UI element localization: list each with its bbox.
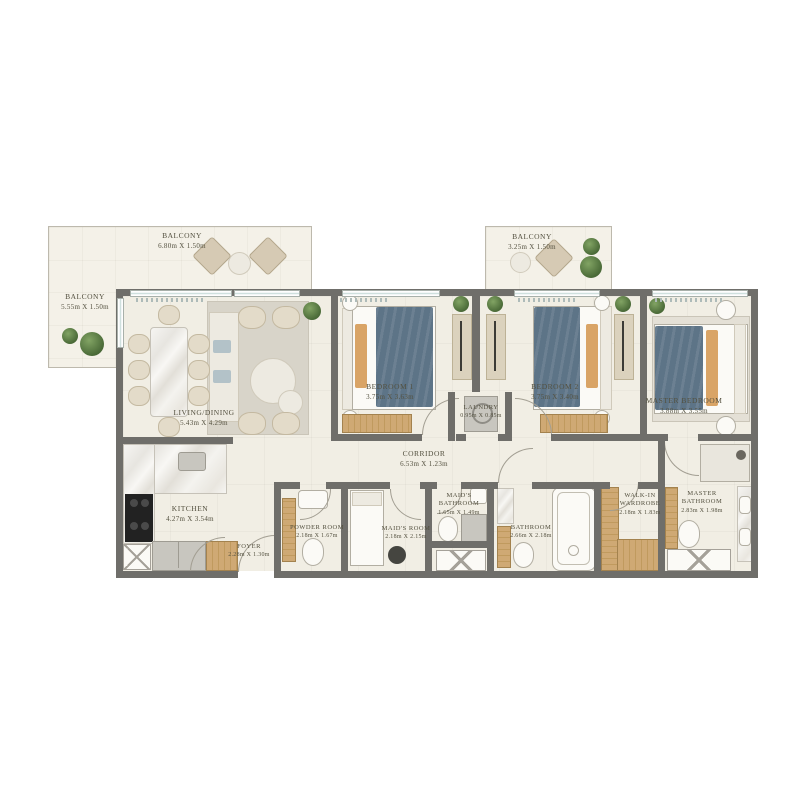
dining-chair bbox=[128, 334, 150, 354]
label-bedroom-2: BEDROOM 2 3.75m X 3.40m bbox=[505, 382, 605, 401]
label-corridor: CORRIDOR 6.53m X 1.23m bbox=[374, 449, 474, 468]
wardrobe-column bbox=[452, 314, 472, 380]
label-maids-bathroom: MAID'S BATHROOM 1.65m X 1.49m bbox=[428, 492, 490, 517]
toilet bbox=[513, 542, 534, 568]
room-dims: 6.80m X 1.50m bbox=[127, 242, 237, 250]
sofa-cushion bbox=[213, 370, 231, 383]
service-shaft bbox=[667, 549, 731, 571]
nightstand bbox=[716, 416, 736, 436]
nightstand bbox=[594, 295, 610, 311]
label-balcony-left: BALCONY 5.55m X 1.50m bbox=[45, 292, 125, 311]
wall bbox=[532, 482, 594, 489]
sliding-door bbox=[514, 290, 600, 297]
plant bbox=[80, 332, 104, 356]
dining-chair bbox=[188, 360, 210, 380]
room-name: BALCONY bbox=[45, 292, 125, 302]
room-name: BALCONY bbox=[127, 231, 237, 241]
wall bbox=[331, 296, 338, 441]
wardrobe-shelving bbox=[617, 539, 664, 571]
balcony-table bbox=[228, 252, 251, 275]
wall bbox=[498, 434, 512, 441]
shower-head bbox=[736, 450, 746, 460]
wardrobe-handle bbox=[494, 321, 496, 371]
stove-burner bbox=[141, 522, 149, 530]
wall bbox=[551, 434, 640, 441]
service-shaft bbox=[436, 550, 486, 571]
window bbox=[130, 290, 232, 297]
room-dims: 0.95m X 0.85m bbox=[448, 413, 514, 420]
bathtub-drain bbox=[568, 545, 579, 556]
floor-plan: BALCONY 6.80m X 1.50m BALCONY 5.55m X 1.… bbox=[0, 0, 800, 800]
room-dims: 5.43m X 4.29m bbox=[144, 419, 264, 427]
wall bbox=[432, 482, 437, 489]
room-name: CORRIDOR bbox=[374, 449, 474, 459]
room-name: MASTER BATHROOM bbox=[670, 490, 734, 507]
room-dims: 6.53m X 1.23m bbox=[374, 460, 474, 468]
plant bbox=[583, 238, 600, 255]
wardrobe-handle bbox=[460, 321, 462, 371]
armchair bbox=[272, 412, 300, 435]
label-master-bedroom: MASTER BEDROOM 3.88m X 3.55m bbox=[624, 396, 744, 415]
room-dims: 4.27m X 3.54m bbox=[140, 515, 240, 523]
kitchen-sink bbox=[178, 452, 206, 471]
wall bbox=[751, 289, 758, 578]
wardrobe-handle bbox=[622, 321, 624, 371]
plant bbox=[62, 328, 78, 344]
room-name: BATHROOM bbox=[486, 524, 576, 532]
wardrobe-column bbox=[614, 314, 634, 380]
armchair bbox=[238, 306, 266, 329]
label-maids-room: MAID'S ROOM 2.18m X 2.15m bbox=[358, 525, 454, 542]
room-name: BEDROOM 1 bbox=[340, 382, 440, 392]
label-bathroom: BATHROOM 2.66m X 2.18m bbox=[486, 524, 576, 541]
service-shaft bbox=[123, 544, 151, 570]
plant bbox=[487, 296, 503, 312]
room-name: FOYER bbox=[209, 543, 289, 551]
shower bbox=[461, 514, 487, 542]
room-dims: 3.75m X 3.63m bbox=[340, 393, 440, 401]
label-bedroom-1: BEDROOM 1 3.75m X 3.63m bbox=[340, 382, 440, 401]
wall bbox=[432, 541, 487, 548]
room-name: KITCHEN bbox=[140, 504, 240, 514]
label-foyer: FOYER 2.28m X 1.30m bbox=[209, 543, 289, 560]
wall bbox=[494, 482, 498, 489]
wall bbox=[698, 434, 751, 441]
wall bbox=[647, 434, 668, 441]
dining-chair bbox=[188, 334, 210, 354]
label-balcony-top: BALCONY 6.80m X 1.50m bbox=[127, 231, 237, 250]
window bbox=[652, 290, 748, 297]
sliding-door bbox=[234, 290, 300, 297]
curtain bbox=[655, 298, 725, 302]
room-name: WALK-IN WARDROBE bbox=[608, 492, 672, 509]
room-name: MAID'S BATHROOM bbox=[428, 492, 490, 509]
basin bbox=[739, 496, 751, 514]
wall bbox=[456, 434, 466, 441]
room-dims: 3.88m X 3.55m bbox=[624, 407, 744, 415]
room-name: LAUNDRY bbox=[448, 404, 514, 412]
label-powder-room: POWDER ROOM 2.18m X 1.67m bbox=[270, 524, 364, 541]
sofa-cushion bbox=[213, 340, 231, 353]
room-dims: 2.83m X 1.98m bbox=[670, 508, 734, 515]
stool bbox=[388, 546, 406, 564]
label-living-dining: LIVING/DINING 5.43m X 4.29m bbox=[144, 408, 264, 427]
dining-chair bbox=[128, 360, 150, 380]
bed-pillow bbox=[586, 324, 598, 388]
wall bbox=[420, 482, 425, 489]
wall bbox=[348, 482, 390, 489]
plant bbox=[615, 296, 631, 312]
stove-burner bbox=[130, 522, 138, 530]
nightstand bbox=[716, 300, 736, 320]
bed-pillow bbox=[355, 324, 367, 388]
basin bbox=[739, 528, 751, 546]
bed-pillow bbox=[352, 492, 382, 506]
refrigerator-divider bbox=[178, 542, 179, 568]
room-name: BEDROOM 2 bbox=[505, 382, 605, 392]
dining-chair bbox=[188, 386, 210, 406]
dining-chair bbox=[128, 386, 150, 406]
toilet bbox=[678, 520, 700, 548]
bathroom-vanity bbox=[497, 488, 514, 524]
label-laundry: LAUNDRY 0.95m X 0.85m bbox=[448, 404, 514, 421]
wall bbox=[116, 571, 238, 578]
plant bbox=[453, 296, 469, 312]
room-dims: 2.18m X 2.15m bbox=[358, 534, 454, 541]
sofa bbox=[209, 312, 239, 422]
curtain bbox=[136, 298, 206, 302]
wall bbox=[601, 482, 610, 489]
wall bbox=[123, 437, 233, 444]
room-dims: 2.28m X 1.30m bbox=[209, 552, 289, 559]
wall bbox=[326, 482, 341, 489]
stove-burner bbox=[130, 499, 138, 507]
armchair bbox=[272, 306, 300, 329]
room-dims: 2.66m X 2.18m bbox=[486, 533, 576, 540]
wall bbox=[594, 482, 601, 578]
balcony-table bbox=[510, 252, 531, 273]
room-dims: 3.25m X 1.50m bbox=[482, 243, 582, 251]
bed-pillow bbox=[706, 330, 718, 406]
wardrobe-cabinet bbox=[342, 414, 412, 433]
dining-chair bbox=[158, 305, 180, 325]
room-dims: 1.65m X 1.49m bbox=[428, 510, 490, 517]
wall bbox=[472, 296, 480, 392]
wardrobe-column bbox=[486, 314, 506, 380]
label-walk-in-wardrobe: WALK-IN WARDROBE 2.18m X 1.83m bbox=[608, 492, 672, 517]
wall bbox=[640, 296, 647, 441]
wall bbox=[274, 482, 300, 489]
label-balcony-right: BALCONY 3.25m X 1.50m bbox=[482, 232, 582, 251]
wall bbox=[461, 482, 487, 489]
plant bbox=[580, 256, 602, 278]
label-kitchen: KITCHEN 4.27m X 3.54m bbox=[140, 504, 240, 523]
window bbox=[342, 290, 440, 297]
room-name: BALCONY bbox=[482, 232, 582, 242]
room-name: MAID'S ROOM bbox=[358, 525, 454, 533]
label-master-bathroom: MASTER BATHROOM 2.83m X 1.98m bbox=[670, 490, 734, 515]
wall bbox=[638, 482, 658, 489]
room-dims: 3.75m X 3.40m bbox=[505, 393, 605, 401]
wall bbox=[331, 434, 422, 441]
toilet bbox=[302, 538, 324, 566]
room-dims: 2.18m X 1.67m bbox=[270, 533, 364, 540]
room-dims: 2.18m X 1.83m bbox=[608, 510, 672, 517]
plant bbox=[303, 302, 321, 320]
room-name: MASTER BEDROOM bbox=[624, 396, 744, 406]
room-name: LIVING/DINING bbox=[144, 408, 264, 418]
room-dims: 5.55m X 1.50m bbox=[45, 303, 125, 311]
curtain bbox=[340, 298, 390, 302]
curtain bbox=[518, 298, 578, 302]
dining-table bbox=[150, 327, 188, 417]
room-name: POWDER ROOM bbox=[270, 524, 364, 532]
